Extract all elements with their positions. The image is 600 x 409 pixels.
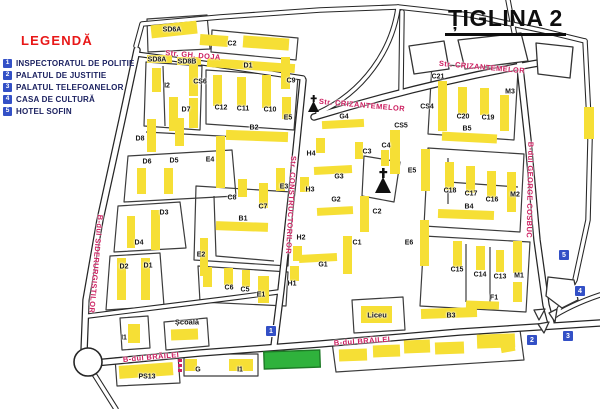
legend-label-culture: CASA DE CULTURĂ — [16, 95, 95, 104]
block-label: B4 — [465, 204, 474, 211]
block-label: SD8B — [178, 59, 197, 66]
legend-label-hotel: HOTEL SOFIN — [16, 107, 72, 116]
block-label: CS5 — [394, 123, 408, 130]
block-label: D5 — [170, 158, 179, 165]
highschool-label: Liceu — [367, 311, 387, 320]
block-label: C7 — [259, 204, 268, 211]
map-marker-telephone: 3 — [563, 331, 573, 341]
block-label: E3 — [280, 184, 289, 191]
block-label: E5 — [408, 168, 417, 175]
block-label: D8 — [136, 136, 145, 143]
police-green-building — [264, 350, 321, 369]
block-label: B3 — [447, 313, 456, 320]
block-label: B1 — [239, 216, 248, 223]
block-label: C20 — [457, 114, 470, 121]
street-label-george-cosbuc: B-dul GEORGE COSBUC — [525, 142, 536, 239]
block-label: G — [195, 367, 200, 374]
hatch-mark — [178, 359, 182, 372]
map-marker-culture: 4 — [575, 286, 585, 296]
block-label: G4 — [339, 114, 348, 121]
block-label: C16 — [486, 197, 499, 204]
block-label: D4 — [135, 240, 144, 247]
map-marker-justice: 2 — [527, 335, 537, 345]
block-label: G2 — [331, 197, 340, 204]
block-label: C17 — [465, 191, 478, 198]
block-label: E2 — [197, 252, 206, 259]
block-label: C3 — [363, 149, 372, 156]
block-label: D6 — [143, 159, 152, 166]
block-label: C21 — [432, 74, 445, 81]
block-label: F1 — [490, 295, 498, 302]
legend-item: 4 CASA DE CULTURĂ — [3, 95, 135, 104]
roundabout — [74, 348, 102, 376]
block-label: C6 — [225, 285, 234, 292]
block-label: E5 — [284, 115, 293, 122]
legend-marker-1: 1 — [3, 59, 12, 68]
block-label: C1 — [353, 240, 362, 247]
legend-label-telephone: PALATUL TELEFOANELOR — [16, 83, 124, 92]
church-icon-small — [308, 95, 319, 112]
block-label: H2 — [297, 235, 306, 242]
block-label: C18 — [444, 188, 457, 195]
school-label: Școală — [175, 318, 199, 327]
block-label: C14 — [474, 272, 487, 279]
block-label: C2 — [228, 41, 237, 48]
legend: LEGENDĂ 1 INSPECTORATUL DE POLITIE 2 PAL… — [3, 33, 135, 119]
map-marker-police: 1 — [266, 326, 276, 336]
block-label: SD8A — [148, 57, 167, 64]
map-page: ȚIGLINA 2 LEGENDĂ 1 INSPECTORATUL DE POL… — [0, 0, 600, 409]
block-label: C9 — [287, 78, 296, 85]
page-title: ȚIGLINA 2 — [445, 5, 566, 36]
legend-item: 2 PALATUL DE JUSTITIE — [3, 71, 135, 80]
block-label: CS4 — [420, 104, 434, 111]
block-label: C19 — [482, 115, 495, 122]
block-label: CS6 — [193, 79, 207, 86]
block-label: I2 — [164, 83, 170, 90]
block-label: B2 — [250, 125, 259, 132]
block-label: B5 — [463, 126, 472, 133]
block-label: G3 — [334, 174, 343, 181]
block-label: E4 — [206, 157, 215, 164]
block-label: C12 — [215, 105, 228, 112]
block-label: C10 — [264, 107, 277, 114]
block-label: M2 — [510, 192, 520, 199]
block-label: C13 — [494, 274, 507, 281]
block-label: H3 — [306, 187, 315, 194]
block-label: C8 — [228, 195, 237, 202]
block-label: G1 — [318, 262, 327, 269]
block-label: I1 — [121, 335, 127, 342]
block-label: SD6A — [163, 27, 182, 34]
legend-marker-5: 5 — [3, 107, 12, 116]
block-label: C5 — [241, 287, 250, 294]
block-label: D3 — [160, 210, 169, 217]
block-label: D2 — [120, 264, 129, 271]
block-label: C15 — [451, 267, 464, 274]
map-marker-hotel: 5 — [559, 250, 569, 260]
block-label: C4 — [382, 143, 391, 150]
legend-marker-4: 4 — [3, 95, 12, 104]
block-label: D7 — [182, 107, 191, 114]
legend-item: 5 HOTEL SOFIN — [3, 107, 135, 116]
legend-marker-2: 2 — [3, 71, 12, 80]
block-label: D1 — [244, 63, 253, 70]
block-label: C2 — [373, 209, 382, 216]
block-label: H1 — [288, 281, 297, 288]
block-label: M1 — [514, 273, 524, 280]
legend-item: 1 INSPECTORATUL DE POLITIE — [3, 59, 135, 68]
block-label: E1 — [257, 292, 266, 299]
legend-marker-3: 3 — [3, 83, 12, 92]
block-label: E6 — [405, 240, 414, 247]
legend-label-justice: PALATUL DE JUSTITIE — [16, 71, 106, 80]
block-label: D1 — [144, 263, 153, 270]
legend-title: LEGENDĂ — [21, 33, 135, 48]
legend-item: 3 PALATUL TELEFOANELOR — [3, 83, 135, 92]
block-label: C11 — [237, 106, 249, 113]
block-label: PS13 — [138, 374, 155, 381]
church-icon — [375, 168, 391, 193]
block-label: I1 — [237, 367, 243, 374]
block-label: H4 — [307, 151, 316, 158]
legend-label-police: INSPECTORATUL DE POLITIE — [16, 59, 135, 68]
block-label: M3 — [505, 89, 515, 96]
